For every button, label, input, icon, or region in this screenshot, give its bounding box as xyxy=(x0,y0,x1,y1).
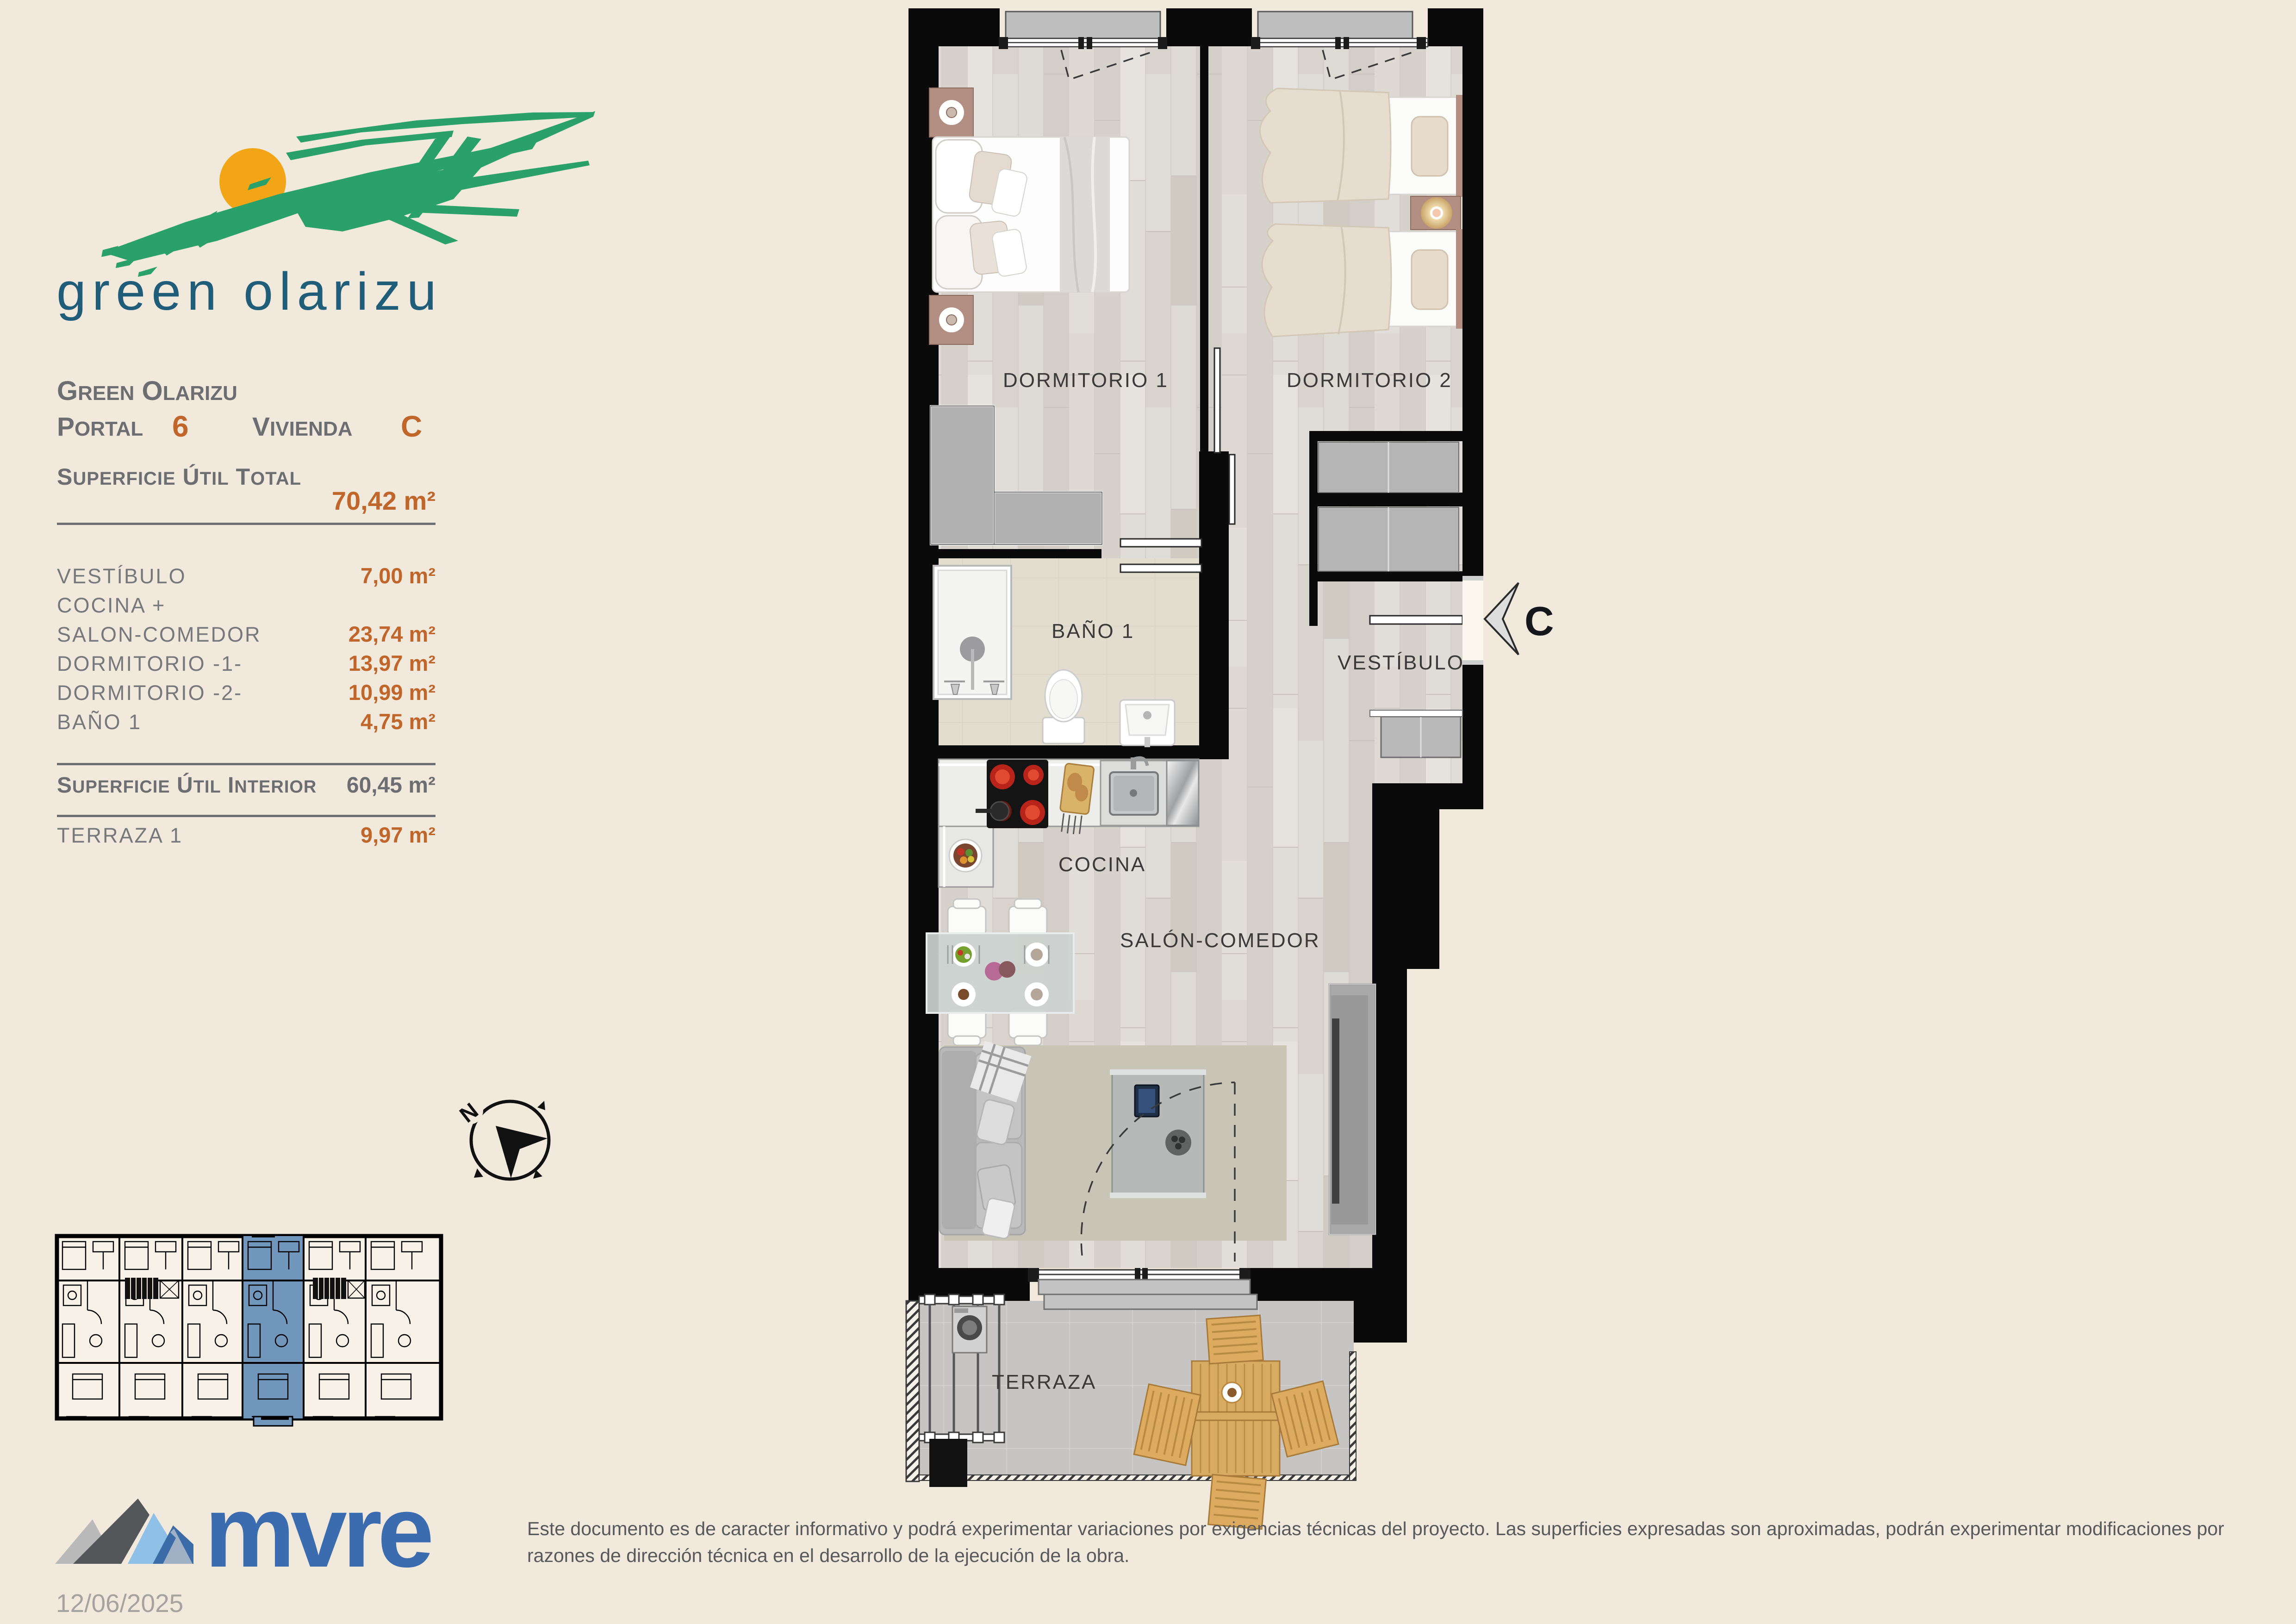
svg-text:VESTÍBULO: VESTÍBULO xyxy=(57,564,187,588)
svg-text:COCINA: COCINA xyxy=(1058,853,1146,876)
svg-text:12/06/2025: 12/06/2025 xyxy=(56,1589,183,1618)
svg-text:DORMITORIO 1: DORMITORIO 1 xyxy=(1003,369,1169,392)
svg-text:70,42 m²: 70,42 m² xyxy=(332,486,436,515)
svg-text:Este documento es de caracter: Este documento es de caracter informativ… xyxy=(527,1518,2224,1539)
svg-text:COCINA +: COCINA + xyxy=(57,593,166,617)
svg-text:SALÓN-COMEDOR: SALÓN-COMEDOR xyxy=(1120,929,1320,952)
svg-text:razones de dirección técnica e: razones de dirección técnica en el desar… xyxy=(527,1545,1129,1566)
svg-text:green olarizu: green olarizu xyxy=(56,262,442,321)
svg-text:SALON-COMEDOR: SALON-COMEDOR xyxy=(57,623,261,646)
svg-text:DORMITORIO -2-: DORMITORIO -2- xyxy=(57,681,243,705)
svg-text:BAÑO 1: BAÑO 1 xyxy=(1052,619,1134,643)
svg-text:DORMITORIO 2: DORMITORIO 2 xyxy=(1287,369,1452,392)
svg-text:DORMITORIO -1-: DORMITORIO -1- xyxy=(57,652,243,675)
svg-text:23,74 m²: 23,74 m² xyxy=(348,622,436,646)
svg-text:C: C xyxy=(401,410,422,443)
svg-text:9,97 m²: 9,97 m² xyxy=(361,823,436,847)
svg-text:VESTÍBULO: VESTÍBULO xyxy=(1338,651,1464,674)
svg-text:TERRAZA 1: TERRAZA 1 xyxy=(57,824,183,847)
svg-text:TERRAZA: TERRAZA xyxy=(992,1371,1096,1393)
svg-text:6: 6 xyxy=(172,410,189,443)
svg-text:7,00 m²: 7,00 m² xyxy=(361,563,436,588)
svg-text:4,75 m²: 4,75 m² xyxy=(361,709,436,734)
svg-text:BAÑO 1: BAÑO 1 xyxy=(57,710,142,734)
svg-text:13,97 m²: 13,97 m² xyxy=(348,651,436,675)
svg-text:10,99 m²: 10,99 m² xyxy=(348,680,436,705)
svg-text:C: C xyxy=(1524,598,1554,644)
svg-text:60,45 m²: 60,45 m² xyxy=(347,773,436,798)
svg-text:mvre: mvre xyxy=(205,1474,431,1588)
